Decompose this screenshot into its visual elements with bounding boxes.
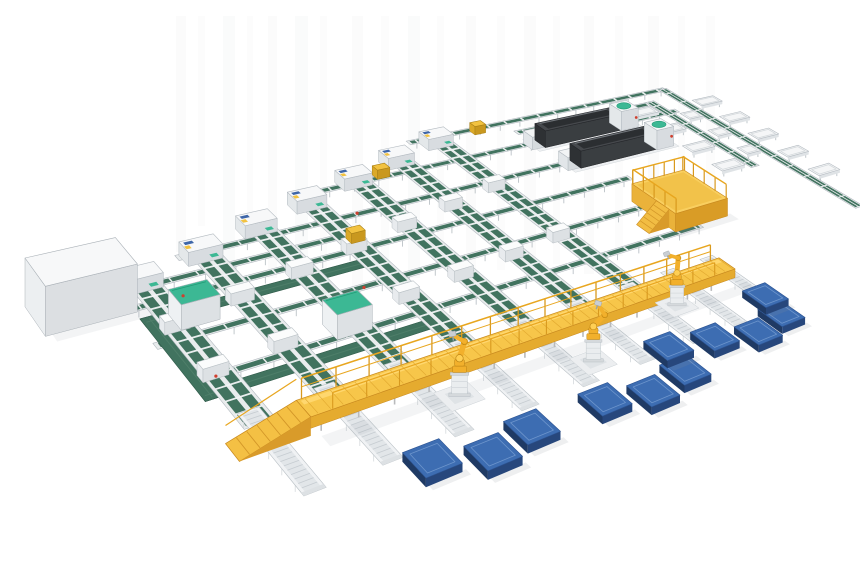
machine-mint-disc xyxy=(652,121,666,127)
factory-render-figure xyxy=(0,0,860,580)
machine-mint-disc xyxy=(617,103,631,109)
factory-scene xyxy=(0,0,860,580)
